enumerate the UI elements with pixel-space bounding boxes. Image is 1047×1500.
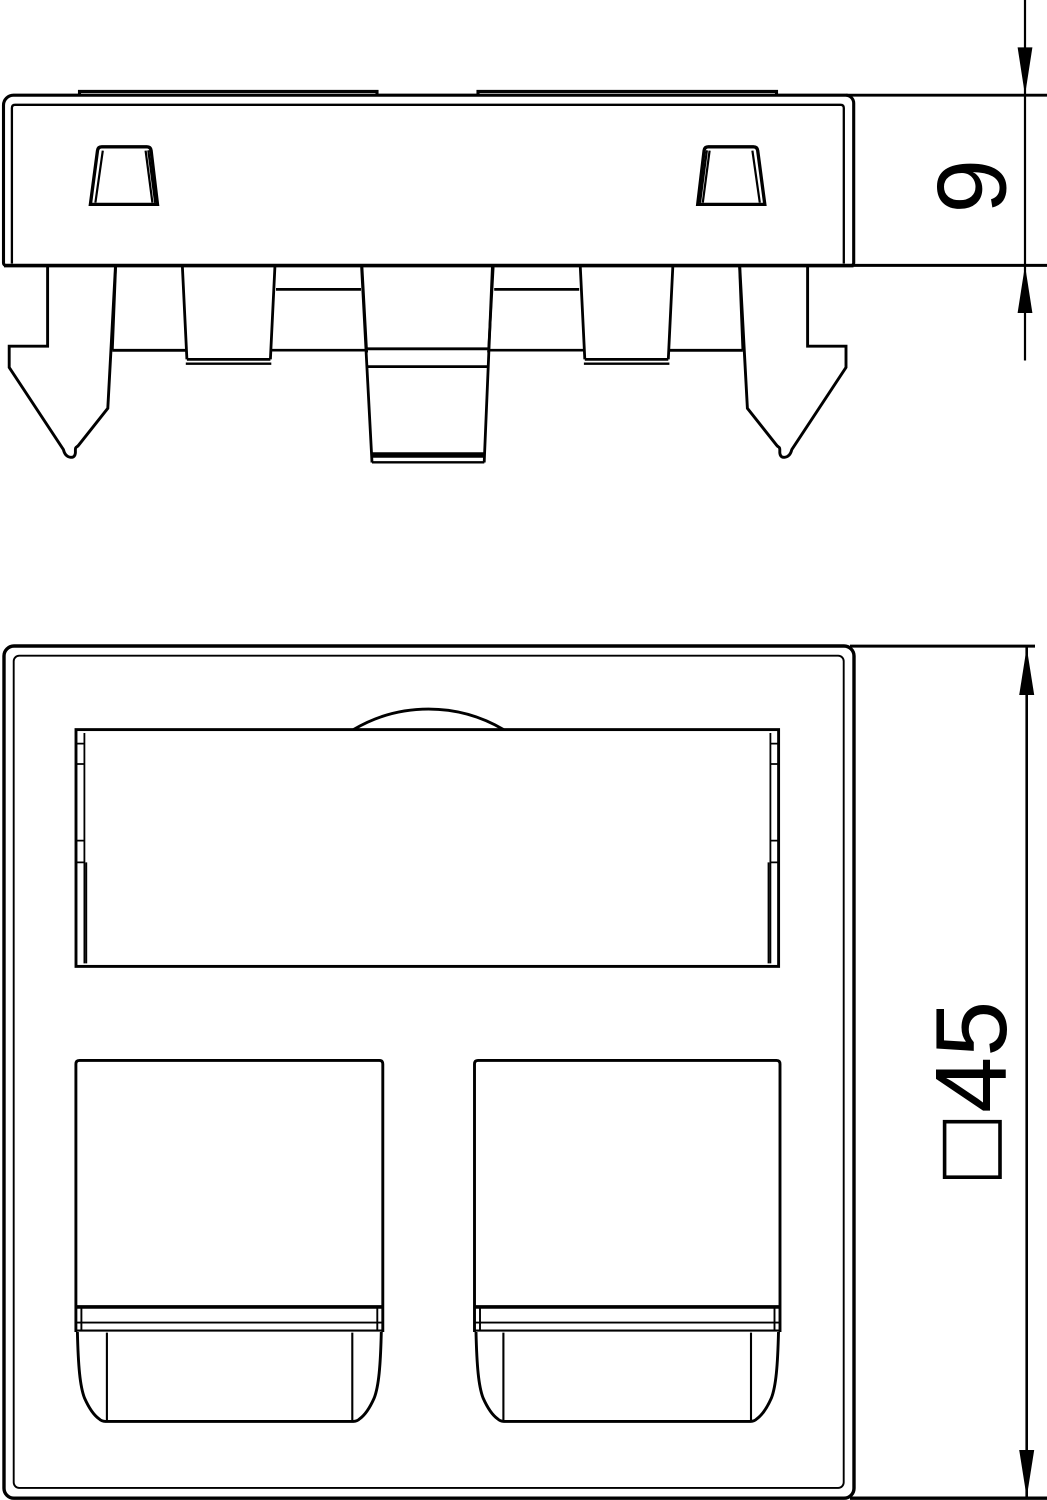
svg-text:9: 9: [917, 159, 1027, 214]
svg-text:45: 45: [916, 1001, 1028, 1113]
